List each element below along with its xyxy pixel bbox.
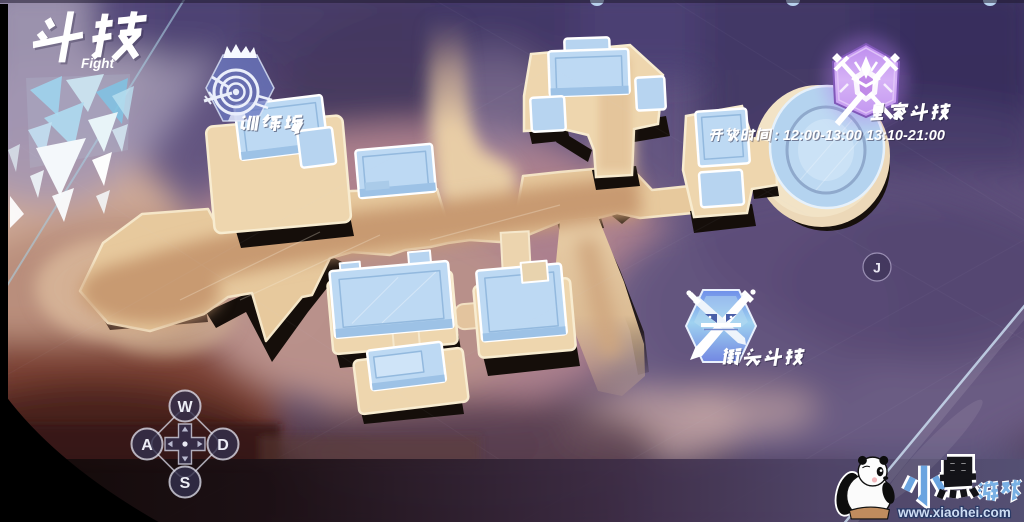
svg-text:W: W	[177, 399, 193, 416]
svg-text:J: J	[873, 260, 881, 276]
svg-text:: 12:00-13:00 13:10-21:00: : 12:00-13:00 13:10-21:00	[774, 128, 945, 144]
svg-text:D: D	[217, 437, 229, 454]
svg-text:S: S	[180, 475, 191, 492]
svg-text:A: A	[141, 437, 153, 454]
svg-text:www.xiaohei.com: www.xiaohei.com	[897, 505, 1011, 520]
svg-text:Fight: Fight	[81, 56, 114, 71]
